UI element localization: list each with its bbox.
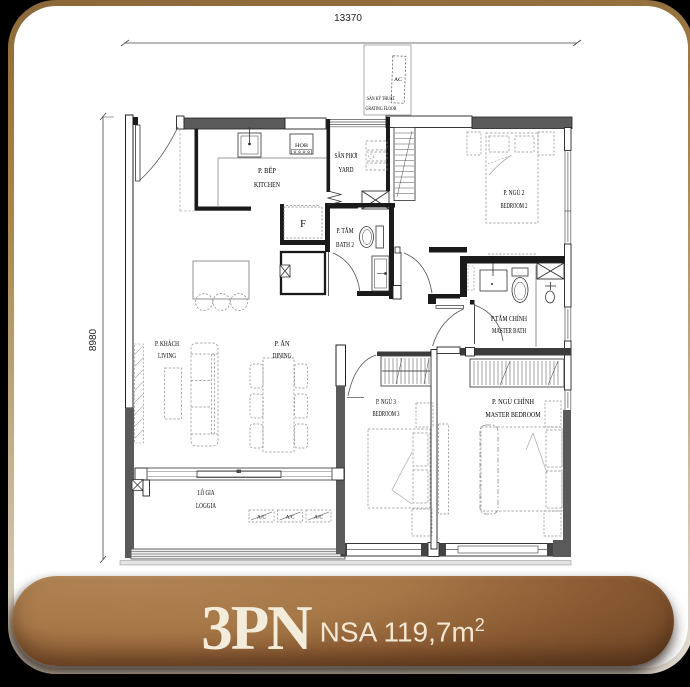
svg-text:HOB: HOB xyxy=(295,143,309,149)
svg-text:LIVING: LIVING xyxy=(158,351,176,360)
svg-text:P. TẮM: P. TẮM xyxy=(337,225,354,235)
svg-text:BEDROOM 3: BEDROOM 3 xyxy=(373,409,400,418)
svg-text:P. KHÁCH: P. KHÁCH xyxy=(155,338,179,348)
svg-text:AC: AC xyxy=(394,77,403,83)
svg-text:P. NGỦ 3: P. NGỦ 3 xyxy=(376,396,396,406)
svg-text:P. ĂN: P. ĂN xyxy=(275,339,291,348)
svg-text:A/C: A/C xyxy=(286,515,296,521)
svg-text:LOGGIA: LOGGIA xyxy=(196,501,216,510)
svg-text:MASTER BATH: MASTER BATH xyxy=(492,326,526,335)
svg-text:LÔ GIA: LÔ GIA xyxy=(198,487,215,497)
svg-text:13370: 13370 xyxy=(334,13,362,24)
svg-text:SÂN PHƠI: SÂN PHƠI xyxy=(335,150,358,160)
svg-text:P.TẮM CHÍNH: P.TẮM CHÍNH xyxy=(491,313,528,323)
svg-text:BATH 2: BATH 2 xyxy=(336,240,354,249)
svg-text:8980: 8980 xyxy=(88,328,99,351)
svg-text:A/C: A/C xyxy=(314,515,324,521)
svg-text:P. NGỦ CHÍNH: P. NGỦ CHÍNH xyxy=(492,396,535,406)
svg-text:MASTER BEDROOM: MASTER BEDROOM xyxy=(486,410,541,419)
svg-text:P. BẾP: P. BẾP xyxy=(258,165,276,175)
svg-text:DINING: DINING xyxy=(273,351,292,360)
svg-text:SÀN KỸ THUẬT: SÀN KỸ THUẬT xyxy=(367,94,396,102)
svg-text:BEDROOM 2: BEDROOM 2 xyxy=(501,201,528,210)
svg-text:P. NGỦ 2: P. NGỦ 2 xyxy=(504,187,525,197)
svg-text:A/C: A/C xyxy=(257,515,267,521)
svg-text:GRATING FLOOR: GRATING FLOOR xyxy=(366,106,397,112)
svg-text:KITCHEN: KITCHEN xyxy=(254,180,281,189)
svg-text:YARD: YARD xyxy=(339,165,354,174)
svg-text:F: F xyxy=(300,218,306,230)
